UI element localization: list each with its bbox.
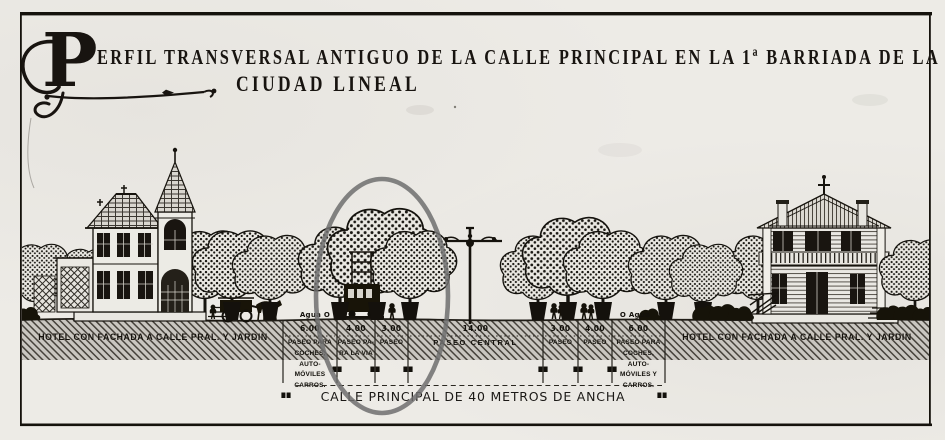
section-width: 6.00: [283, 324, 337, 336]
section-width: 4.00: [337, 324, 375, 336]
section-paseo-coches-left: 6.00 PASEO PARA COCHES, AUTO- MÓVILES CA…: [283, 324, 337, 392]
section-label: PASEO PA- RA LA VIA: [337, 338, 375, 360]
section-width: 14.00: [408, 324, 543, 336]
section-label: PASEO: [375, 338, 408, 349]
section-width: 3.00: [543, 324, 578, 336]
section-width: 3.00: [375, 324, 408, 336]
section-label: PASEO PARA COCHES, AUTO- MÓVILES Y CARRO…: [612, 338, 665, 392]
section-paseo-right2: 4.00 PASEO: [578, 324, 612, 349]
right-property-label: HOTEL CON FACHADA A CALLE PRAL. Y JARDIN: [678, 332, 915, 343]
title-ornate-initial: P: [42, 24, 98, 98]
plate-title: ERFIL TRANSVERSAL ANTIGUO DE LA CALLE PR…: [97, 45, 940, 70]
section-label: PASEO CENTRAL: [408, 338, 543, 349]
section-label: PASEO PARA COCHES, AUTO- MÓVILES CARROS.: [283, 338, 337, 392]
section-width: 4.00: [578, 324, 612, 336]
scan-artifacts: [28, 94, 888, 188]
street-width-label: CALLE PRINCIPAL DE 40 METROS DE ANCHA: [300, 389, 646, 404]
scanned-plate: P ERFIL TRANSVERSAL ANTIGUO DE LA CALLE …: [0, 0, 945, 440]
section-width: 6.00: [612, 324, 665, 336]
section-paseo-central: 14.00 PASEO CENTRAL: [408, 324, 543, 349]
water-main-note-right: O Agua: [609, 311, 661, 319]
section-paseo-via: 4.00 PASEO PA- RA LA VIA: [337, 324, 375, 360]
plate-title-line2: CIUDAD LINEAL: [236, 71, 420, 97]
left-property-label: HOTEL CON FACHADA A CALLE PRAL. Y JARDIN: [36, 332, 270, 343]
section-label: PASEO: [578, 338, 612, 349]
section-paseo-right1: 3.00 PASEO: [543, 324, 578, 349]
section-paseo-coches-right: 6.00 PASEO PARA COCHES, AUTO- MÓVILES Y …: [612, 324, 665, 392]
section-label: PASEO: [543, 338, 578, 349]
water-main-note-left: Agua O: [291, 311, 339, 319]
section-paseo-left: 3.00 PASEO: [375, 324, 408, 349]
